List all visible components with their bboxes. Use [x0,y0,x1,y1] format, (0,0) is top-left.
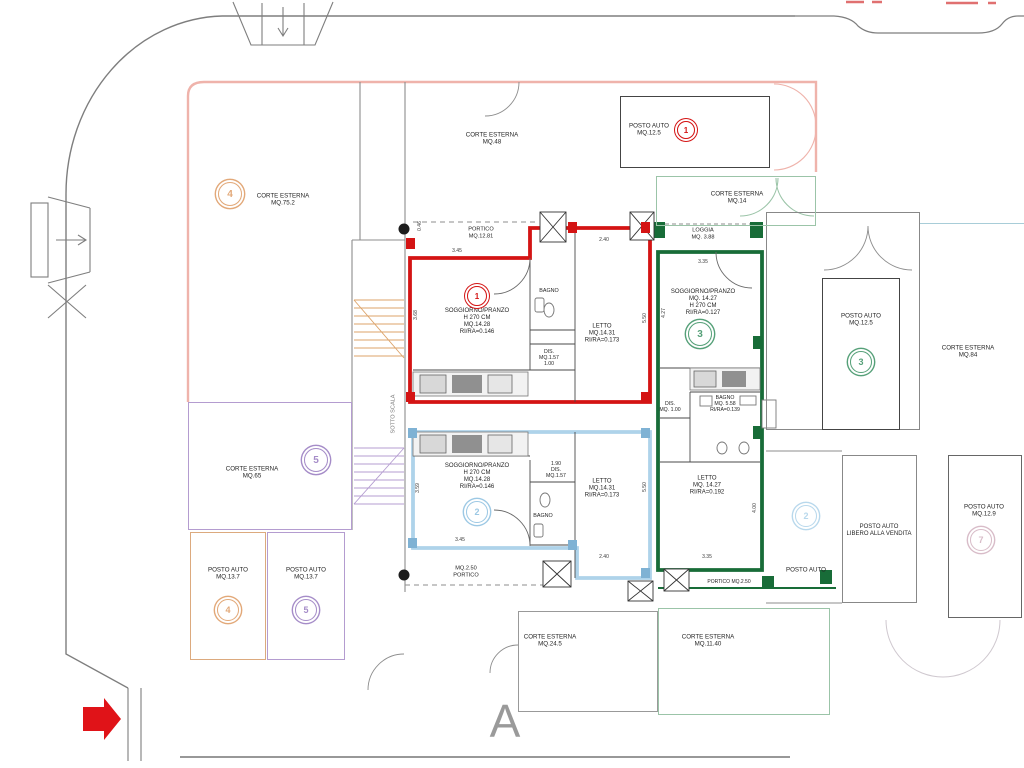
dimension-label: 4.27 [661,308,667,318]
dimension-label: 2.40 [599,554,609,560]
dimension-label: 3.59 [415,483,421,493]
page: { "section_marker": "A", "colors": { "un… [0,0,1024,768]
unit-badge: 4 [217,599,239,621]
unit-badge: 2 [466,501,488,523]
corte-esterna-245-box [518,611,658,712]
label-posto-auto-5: POSTO AUTO MQ.13.7 [286,567,326,582]
dimension-label: 3.68 [413,310,419,320]
label-soggiorno-1: SOGGIORNO/PRANZO H 270 CM MQ.14.28 RI/RA… [445,308,509,336]
dimension-label: 3.45 [452,248,462,254]
label-portico-3: PORTICO MQ.2.50 [707,580,750,586]
dimension-label: 3.35 [702,554,712,560]
label-sotto-scala: SOTTO SCALA [391,394,398,433]
label-letto-1: LETTO MQ.14.31 RI/RA=0.173 [585,323,620,344]
dimension-label: 4.00 [752,503,758,513]
label-corte-esterna-84: CORTE ESTERNA MQ.84 [942,345,995,360]
dimension-label: 3.35 [698,259,708,265]
label-posto-auto-7: POSTO AUTO MQ.12.9 [964,504,1004,519]
label-posto-auto-4: POSTO AUTO MQ.13.7 [208,567,248,582]
label-posto-auto-libero: POSTO AUTO LIBERO ALLA VENDITA [847,524,912,538]
unit-badge: 3 [850,351,872,373]
dimension-label: 5.50 [642,313,648,323]
label-portico-2: MQ.2.50 PORTICO [453,565,478,578]
corte-esterna-1140-box [658,608,830,715]
floorplan-canvas: CORTE ESTERNA MQ.75.2CORTE ESTERNA MQ.48… [0,0,1024,768]
label-corte-esterna-1140: CORTE ESTERNA MQ.11.40 [682,634,735,649]
unit-badge: 2 [795,505,817,527]
label-dis-1: DIS. MQ.1.57 1.00 [539,349,559,367]
label-loggia-3: LOGGIA MQ. 3.88 [691,227,714,240]
plan-overlay: CORTE ESTERNA MQ.75.2CORTE ESTERNA MQ.48… [0,0,1024,768]
label-dis-3: DIS. MQ. 1.00 [659,401,680,413]
corte-esterna-84-edge [920,223,1024,430]
label-dis-2: 1.90 DIS. MQ.1.57 [546,461,566,479]
label-soggiorno-2: SOGGIORNO/PRANZO H 270 CM MQ.14.28 RI/RA… [445,463,509,491]
unit-badge: 5 [304,448,328,472]
unit-badge: 1 [677,121,695,139]
label-posto-auto-1: POSTO AUTO MQ.12.5 [629,123,669,138]
label-corte-esterna-14: CORTE ESTERNA MQ.14 [711,191,764,206]
label-posto-auto-2: POSTO AUTO [786,566,826,573]
dimension-label: 2.40 [599,237,609,243]
dimension-label: 5.50 [642,482,648,492]
unit-badge: 7 [970,529,992,551]
unit-badge: 1 [467,286,487,306]
label-letto-3: LETTO MQ. 14.27 RI/RA=0.192 [690,475,725,496]
label-corte-esterna-245: CORTE ESTERNA MQ.24.5 [524,634,577,649]
label-corte-esterna-4: CORTE ESTERNA MQ.75.2 [257,193,310,208]
unit-badge: 4 [218,182,242,206]
label-corte-esterna-48: CORTE ESTERNA MQ.48 [466,132,519,147]
dimension-label: 3.45 [455,537,465,543]
unit-badge: 5 [295,599,317,621]
label-corte-esterna-5: CORTE ESTERNA MQ.65 [226,466,279,481]
label-bagno-3: BAGNO MQ. 5.58 RI/RA=0.139 [710,395,740,413]
unit-badge: 3 [688,322,712,346]
label-letto-2: LETTO MQ.14.31 RI/RA=0.173 [585,478,620,499]
posto-auto-4-box [190,532,266,660]
section-marker: A [490,694,521,748]
label-soggiorno-3: SOGGIORNO/PRANZO MQ. 14.27 H 270 CM RI/R… [671,289,735,317]
label-portico-1: PORTICO MQ.12.81 [468,226,493,239]
posto-auto-5-box [267,532,345,660]
label-bagno-2: BAGNO [533,513,552,519]
label-posto-auto-3: POSTO AUTO MQ.12.5 [841,313,881,328]
dimension-label: 0.46 [417,221,423,231]
label-bagno-1: BAGNO [539,288,558,294]
